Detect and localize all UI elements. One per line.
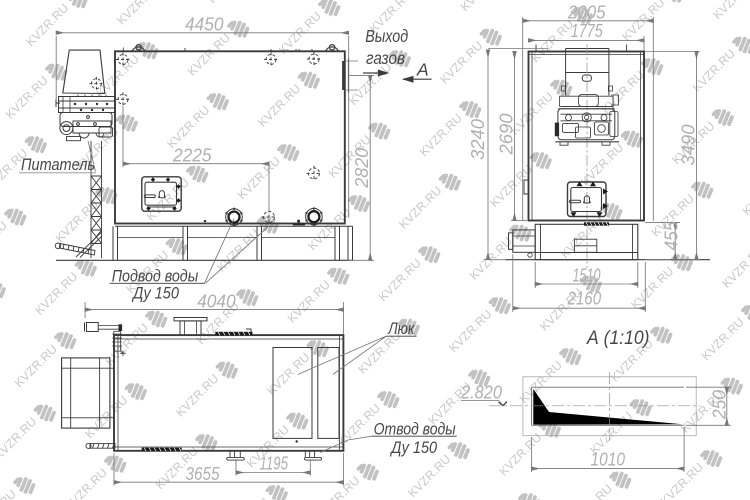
svg-text:KVZR.RU: KVZR.RU bbox=[567, 481, 615, 500]
svg-text:455: 455 bbox=[661, 221, 682, 251]
svg-text:3655: 3655 bbox=[186, 463, 221, 484]
svg-text:KVZR.RU: KVZR.RU bbox=[12, 342, 60, 390]
svg-text:1510: 1510 bbox=[573, 265, 601, 286]
svg-text:KVZR.RU: KVZR.RU bbox=[740, 170, 750, 218]
svg-text:KVZR.RU: KVZR.RU bbox=[62, 465, 110, 500]
svg-text:KVZR.RU: KVZR.RU bbox=[0, 414, 40, 462]
svg-text:KVZR.RU: KVZR.RU bbox=[405, 452, 453, 500]
svg-text:А: А bbox=[416, 60, 429, 80]
svg-text:KVZR.RU: KVZR.RU bbox=[496, 430, 544, 478]
svg-text:4450: 4450 bbox=[185, 14, 224, 35]
svg-text:KVZR.RU: KVZR.RU bbox=[235, 154, 283, 202]
svg-text:KVZR.RU: KVZR.RU bbox=[0, 218, 10, 266]
svg-text:KVZR.RU: KVZR.RU bbox=[285, 277, 333, 325]
svg-text:KVZR.RU: KVZR.RU bbox=[619, 0, 667, 44]
svg-text:KVZR.RU: KVZR.RU bbox=[719, 242, 750, 290]
svg-text:KVZR.RU: KVZR.RU bbox=[264, 350, 312, 398]
svg-text:3240: 3240 bbox=[467, 118, 488, 160]
svg-text:1010: 1010 bbox=[591, 449, 626, 470]
svg-text:KVZR.RU: KVZR.RU bbox=[658, 460, 706, 500]
svg-text:KVZR.RU: KVZR.RU bbox=[205, 0, 253, 6]
svg-text:KVZR.RU: KVZR.RU bbox=[214, 226, 262, 274]
svg-text:2225: 2225 bbox=[172, 145, 212, 166]
svg-text:Ду 150: Ду 150 bbox=[131, 284, 179, 303]
svg-text:KVZR.RU: KVZR.RU bbox=[528, 17, 576, 65]
svg-text:KVZR.RU: KVZR.RU bbox=[417, 111, 465, 159]
svg-text:2690: 2690 bbox=[496, 113, 517, 156]
svg-text:4040: 4040 bbox=[197, 290, 236, 311]
svg-text:KVZR.RU: KVZR.RU bbox=[396, 183, 444, 231]
svg-text:250: 250 bbox=[709, 389, 730, 420]
svg-text:3490: 3490 bbox=[678, 124, 699, 166]
svg-text:KVZR.RU: KVZR.RU bbox=[82, 393, 130, 441]
svg-text:KVZR.RU: KVZR.RU bbox=[223, 495, 271, 500]
svg-text:KVZR.RU: KVZR.RU bbox=[458, 0, 506, 14]
svg-text:Люк: Люк bbox=[387, 319, 415, 338]
svg-text:KVZR.RU: KVZR.RU bbox=[173, 371, 221, 419]
svg-text:KVZR.RU: KVZR.RU bbox=[376, 256, 424, 304]
svg-text:газов: газов bbox=[366, 48, 405, 68]
svg-text:KVZR.RU: KVZR.RU bbox=[53, 197, 101, 245]
svg-text:KVZR.RU: KVZR.RU bbox=[437, 38, 485, 86]
svg-text:KVZR.RU: KVZR.RU bbox=[699, 315, 747, 363]
svg-text:2160: 2160 bbox=[567, 287, 602, 308]
svg-text:KVZR.RU: KVZR.RU bbox=[23, 1, 71, 49]
svg-text:Ду 150: Ду 150 bbox=[390, 438, 438, 457]
svg-text:KVZR.RU: KVZR.RU bbox=[710, 0, 750, 22]
svg-text:KVZR.RU: KVZR.RU bbox=[255, 81, 303, 129]
svg-text:Отвод воды: Отвод воды bbox=[374, 419, 456, 438]
svg-text:KVZR.RU: KVZR.RU bbox=[517, 358, 565, 406]
svg-text:KVZR.RU: KVZR.RU bbox=[3, 73, 51, 121]
svg-text:Выход: Выход bbox=[365, 26, 408, 46]
svg-text:KVZR.RU: KVZR.RU bbox=[185, 30, 233, 78]
svg-text:1195: 1195 bbox=[260, 452, 289, 473]
svg-text:1775: 1775 bbox=[571, 20, 604, 41]
svg-text:KVZR.RU: KVZR.RU bbox=[467, 234, 515, 282]
svg-text:Питатель: Питатель bbox=[21, 155, 95, 174]
svg-text:KVZR.RU: KVZR.RU bbox=[446, 307, 494, 355]
svg-text:2820: 2820 bbox=[351, 147, 372, 189]
svg-text:KVZR.RU: KVZR.RU bbox=[114, 0, 162, 28]
svg-text:2.820: 2.820 bbox=[460, 382, 503, 403]
svg-text:KVZR.RU: KVZR.RU bbox=[628, 264, 676, 312]
svg-text:А (1:10): А (1:10) bbox=[586, 328, 649, 349]
svg-text:KVZR.RU: KVZR.RU bbox=[314, 473, 362, 500]
svg-text:KVZR.RU: KVZR.RU bbox=[0, 487, 19, 500]
svg-text:KVZR.RU: KVZR.RU bbox=[32, 269, 80, 317]
